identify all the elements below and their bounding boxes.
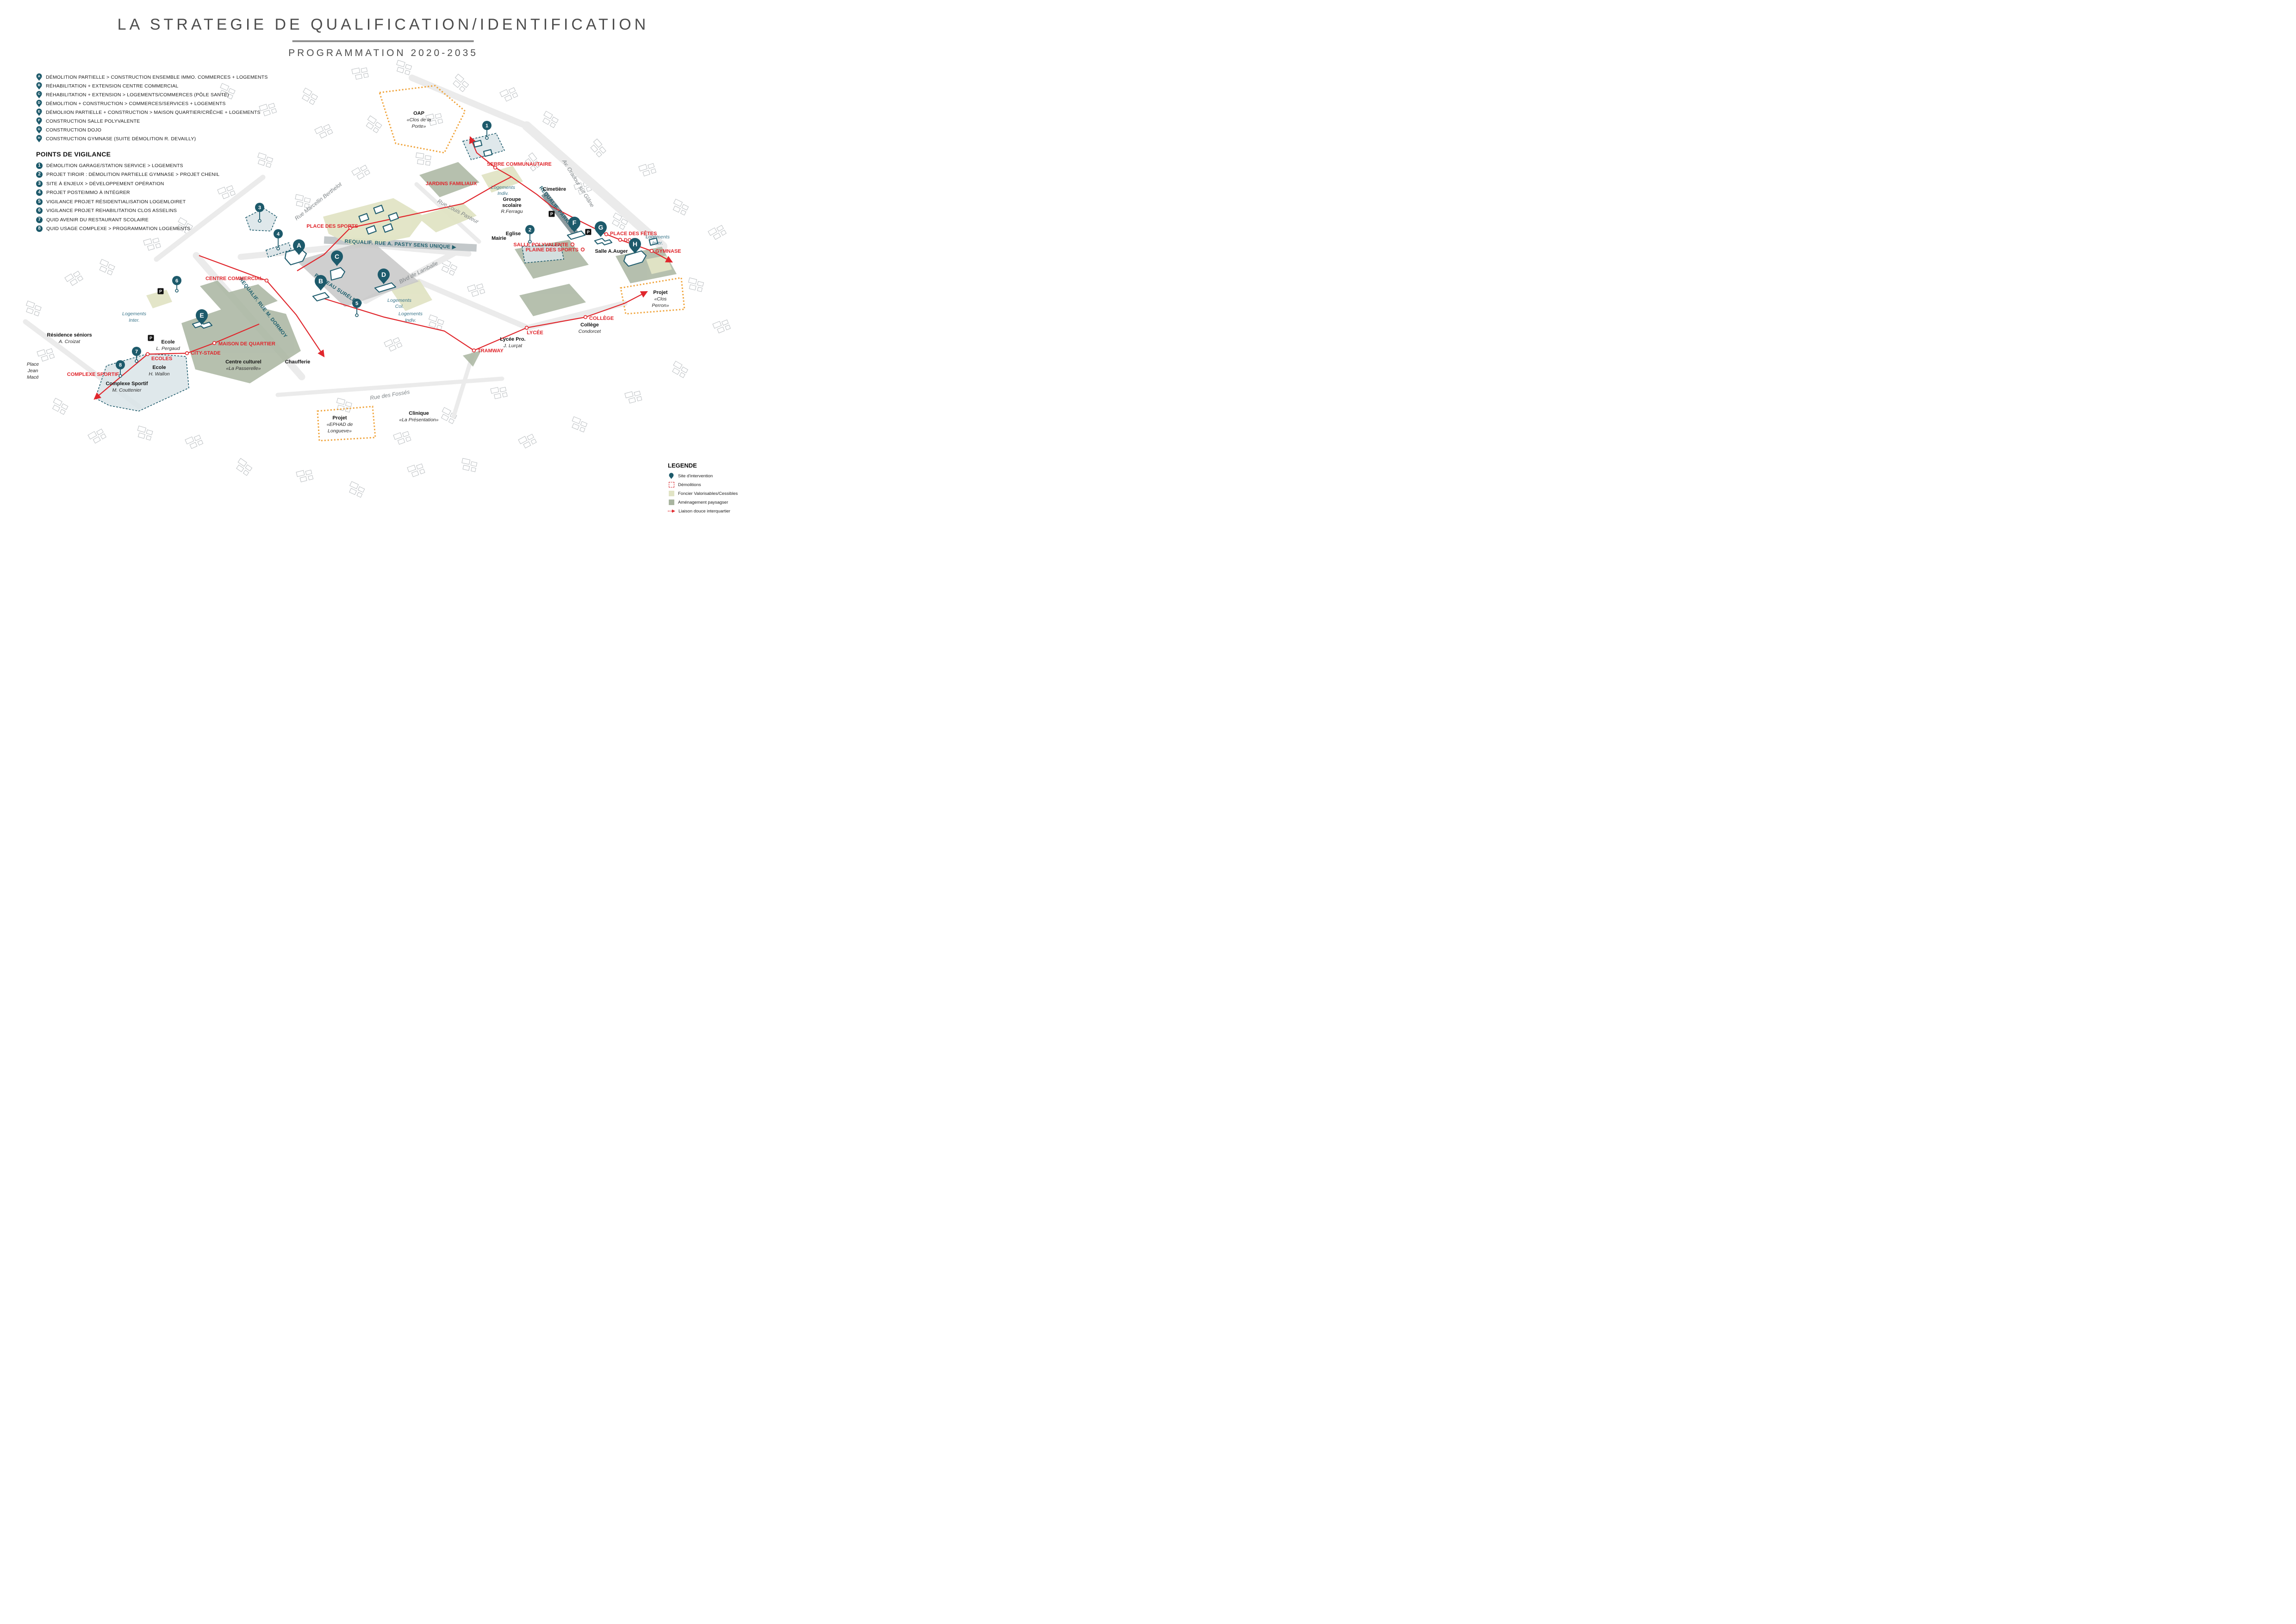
svg-text:7: 7 [135, 349, 138, 355]
label-complexe-sportif-1: Complexe Sportif [106, 381, 148, 387]
label-logements-indiv-s1: Logements [398, 311, 423, 317]
vigilance-item-8: 8QUID USAGE COMPLEXE > PROGRAMMATION LOG… [36, 226, 219, 232]
label-complexe-sportif-2: M. Couttenier [112, 387, 142, 393]
svg-text:E: E [38, 109, 40, 113]
pin-icon: B [36, 82, 42, 90]
label-eglise: Eglise [506, 231, 521, 237]
parking-icon: P [550, 212, 553, 217]
label-clinique-2: «La Présentation» [399, 417, 438, 423]
label-college-red: COLLÈGE [589, 315, 614, 321]
label-logements-col-1: Logements [387, 298, 412, 303]
pin-icon: D [36, 100, 42, 107]
svg-text:2: 2 [529, 227, 531, 233]
vigilance-num: 6 [36, 207, 43, 214]
label-residence-seniors-1: Résidence séniors [47, 332, 92, 338]
header: LA STRATEGIE DE QUALIFICATION/IDENTIFICA… [118, 16, 649, 59]
legend-item-site: Site d'intervention [668, 473, 760, 479]
vigilance-panel: POINTS DE VIGILANCE 1DÉMOLITION GARAGE/S… [36, 150, 219, 235]
program-item-H: H CONSTRUCTION GYMNASE (SUITE DÉMOLITION… [36, 136, 268, 142]
vigilance-item-3: 3SITE À ENJEUX > DÉVELOPPEMENT OPÉRATION [36, 181, 219, 187]
program-item-label: DÉMOLITION PARTIELLE > CONSTRUCTION ENSE… [46, 75, 268, 80]
vigilance-num: 4 [36, 189, 43, 196]
label-logements-indiv-s2: Indiv. [405, 318, 416, 323]
label-logements-col-2: Col. [395, 304, 404, 309]
vigilance-item-7: 7QUID AVENIR DU RESTAURANT SCOLAIRE [36, 217, 219, 223]
program-item-C: C RÉHABILITATION + EXTENSION > LOGEMENTS… [36, 92, 268, 98]
vigilance-label: PROJET POSTEIMMO À INTÉGRER [46, 190, 130, 195]
legend-label: Site d'intervention [678, 474, 713, 479]
svg-text:C: C [38, 92, 41, 96]
program-item-A: A DÉMOLITION PARTIELLE > CONSTRUCTION EN… [36, 74, 268, 80]
label-place-jean-mace-1: Place [27, 362, 39, 367]
vigilance-label: VIGILANCE PROJET RÉSIDENTIALISATION LOGE… [46, 199, 186, 205]
vigilance-num: 3 [36, 181, 43, 187]
vigilance-num: 8 [36, 225, 43, 232]
pin-icon: A [36, 73, 42, 81]
svg-text:G: G [598, 224, 604, 231]
label-lycee-pro-1: Lycée Pro. [500, 337, 525, 342]
label-cimetiere: Cimetière [543, 187, 566, 192]
label-oap-2: «Clos de la [407, 117, 431, 123]
foncier-swatch-icon [668, 491, 675, 496]
label-centre-commercial: CENTRE COMMERCIAL [205, 276, 263, 281]
label-ephad-2: «EPHAD de [327, 422, 353, 427]
program-item-label: RÉHABILITATION + EXTENSION > LOGEMENTS/C… [46, 92, 229, 98]
vigilance-label: VIGILANCE PROJET REHABILITATION CLOS ASS… [46, 208, 177, 213]
vigilance-item-6: 6VIGILANCE PROJET REHABILITATION CLOS AS… [36, 208, 219, 214]
label-logements-inter-w1: Logements [122, 311, 147, 317]
marker-6: 6 [172, 276, 181, 292]
vigilance-num: 7 [36, 217, 43, 223]
label-plaine-des-sports: PLAINE DES SPORTS [526, 247, 579, 253]
label-ephad-1: Projet [332, 415, 347, 421]
program-item-label: CONSTRUCTION SALLE POLYVALENTE [46, 119, 140, 124]
legend-item-liaison: Liaison douce interquartier [668, 508, 760, 514]
svg-text:C: C [335, 253, 339, 260]
paysager-swatch-icon [668, 500, 675, 505]
demolition-swatch-icon [668, 482, 675, 487]
svg-text:A: A [38, 74, 41, 78]
svg-text:1: 1 [485, 123, 488, 129]
vigilance-item-4: 4PROJET POSTEIMMO À INTÉGRER [36, 190, 219, 196]
road-label-fosses: Rue des Fossés [369, 388, 410, 401]
svg-text:B: B [318, 277, 323, 285]
legend-heading: LEGENDE [668, 462, 760, 469]
label-centre-culturel-1: Centre culturel [225, 359, 261, 365]
label-clos-perron-1: Projet [653, 290, 668, 295]
label-maison-de-quartier: MAISON DE QUARTIER [218, 341, 275, 347]
program-legend: A DÉMOLITION PARTIELLE > CONSTRUCTION EN… [36, 74, 268, 144]
label-clinique-1: Clinique [409, 411, 429, 416]
label-logements-inter-e1: Logements [646, 234, 670, 240]
label-logements-inter-e2: Inter. [652, 240, 663, 246]
svg-text:E: E [199, 312, 204, 319]
label-place-des-sports: PLACE DES SPORTS [306, 224, 358, 229]
vigilance-label: QUID USAGE COMPLEXE > PROGRAMMATION LOGE… [46, 226, 190, 231]
label-clos-perron-2: «Clos [654, 296, 667, 302]
pin-B: B [315, 275, 327, 291]
program-item-label: RÉHABILITATION + EXTENSION CENTRE COMMER… [46, 83, 178, 89]
urban-strategy-map-page: Rue Marcellin Berthelot Blvd de Lamballe… [0, 0, 765, 541]
map-legend: LEGENDE Site d'intervention Démolitions … [668, 462, 760, 517]
label-ecole-pergaud-1: Ecole [161, 339, 174, 345]
label-logements-indiv-n2: Indiv. [498, 191, 509, 196]
program-item-D: D DÉMOLITION + CONSTRUCTION > COMMERCES/… [36, 100, 268, 106]
vigilance-label: DÉMOLITION GARAGE/STATION SERVICE > LOGE… [46, 163, 183, 169]
label-mairie: Mairie [492, 236, 506, 241]
pin-icon: H [36, 135, 42, 143]
label-place-jean-mace-3: Macé [27, 375, 39, 380]
pin-icon: F [36, 117, 42, 125]
label-ephad-3: Longueve» [328, 428, 352, 434]
legend-label: Démolitions [678, 482, 701, 487]
pin-icon: C [36, 91, 42, 99]
label-salle-auger: Salle A.Auger [595, 249, 628, 254]
label-tramway: TRAMWAY [478, 348, 504, 354]
vigilance-item-5: 5VIGILANCE PROJET RÉSIDENTIALISATION LOG… [36, 199, 219, 205]
vigilance-label: SITE À ENJEUX > DÉVELOPPEMENT OPÉRATION [46, 181, 164, 187]
label-logements-inter-w2: Inter. [129, 318, 140, 323]
pin-icon: G [36, 126, 42, 134]
svg-text:B: B [38, 83, 41, 87]
legend-item-demolitions: Démolitions [668, 481, 760, 488]
label-serre-communautaire: SERRE COMMUNAUTAIRE [487, 162, 552, 167]
svg-text:8: 8 [119, 362, 122, 368]
vigilance-item-1: 1DÉMOLITION GARAGE/STATION SERVICE > LOG… [36, 162, 219, 169]
svg-text:F: F [572, 219, 577, 226]
label-groupe-scolaire-1: Groupe [503, 197, 521, 202]
parking-icon: P [159, 289, 162, 294]
svg-text:A: A [297, 242, 301, 249]
label-clos-perron-3: Perron» [652, 303, 669, 308]
liaison-arrow-icon [668, 509, 675, 513]
legend-label: Liaison douce interquartier [678, 509, 730, 514]
vigilance-item-2: 2PROJET TIROIR : DÉMOLITION PARTIELLE GY… [36, 172, 219, 178]
vigilance-label: PROJET TIROIR : DÉMOLITION PARTIELLE GYM… [46, 172, 219, 177]
svg-text:H: H [633, 240, 637, 248]
parking-icon: P [587, 230, 590, 235]
label-lycee-pro-2: J. Lurçat [503, 343, 523, 349]
vigilance-num: 1 [36, 162, 43, 169]
label-college-2: Condorcet [579, 329, 602, 334]
label-gymnase: GYMNASE [655, 249, 681, 254]
svg-text:D: D [38, 100, 41, 105]
vigilance-label: QUID AVENIR DU RESTAURANT SCOLAIRE [46, 217, 149, 223]
label-lycee: LYCÉE [527, 330, 543, 336]
legend-item-foncier: Foncier Valorisables/Cessibles [668, 490, 760, 497]
svg-text:3: 3 [258, 205, 261, 211]
svg-text:G: G [38, 127, 41, 131]
pin-icon: E [36, 108, 42, 116]
svg-text:5: 5 [355, 301, 358, 306]
program-item-E: E DÉMOLIION PARTIELLE + CONSTRUCTION > M… [36, 109, 268, 115]
site-pin-icon [668, 473, 675, 479]
label-ecole-wallon-1: Ecole [152, 365, 166, 370]
svg-text:D: D [381, 271, 386, 278]
label-oap-1: OAP [413, 111, 424, 116]
marker-2: 2 [525, 225, 535, 243]
label-residence-seniors-2: A. Croizat [58, 339, 81, 344]
label-college-1: Collège [580, 322, 599, 328]
label-oap-3: Porte» [412, 124, 426, 129]
label-groupe-scolaire-3: R.Ferragu [501, 209, 523, 214]
vigilance-heading: POINTS DE VIGILANCE [36, 150, 219, 158]
svg-text:F: F [38, 118, 40, 122]
label-city-stade: CITY-STADE [191, 350, 221, 356]
program-item-F: F CONSTRUCTION SALLE POLYVALENTE [36, 118, 268, 124]
label-logements-indiv-n1: Logements [491, 185, 516, 190]
title-rule [292, 40, 474, 42]
legend-label: Foncier Valorisables/Cessibles [678, 491, 738, 496]
vigilance-num: 5 [36, 199, 43, 205]
vigilance-num: 2 [36, 171, 43, 178]
parking-icon: P [149, 336, 152, 341]
label-place-jean-mace-2: Jean [27, 368, 38, 374]
page-subtitle: PROGRAMMATION 2020-2035 [118, 48, 649, 59]
program-item-label: DÉMOLIION PARTIELLE + CONSTRUCTION > MAI… [46, 110, 261, 115]
svg-text:4: 4 [277, 231, 280, 237]
program-item-B: B RÉHABILITATION + EXTENSION CENTRE COMM… [36, 83, 268, 89]
page-title: LA STRATEGIE DE QUALIFICATION/IDENTIFICA… [118, 16, 649, 34]
svg-text:H: H [38, 136, 40, 140]
program-item-G: G CONSTRUCTION DOJO [36, 127, 268, 133]
legend-item-paysager: Aménagement paysagser [668, 499, 760, 506]
program-item-label: CONSTRUCTION DOJO [46, 127, 101, 133]
program-item-label: DÉMOLITION + CONSTRUCTION > COMMERCES/SE… [46, 101, 226, 106]
legend-label: Aménagement paysagser [678, 500, 728, 505]
label-centre-culturel-2: «La Passerelle» [226, 366, 261, 371]
label-chaufferie: Chaufferie [285, 359, 310, 365]
svg-text:6: 6 [175, 278, 178, 284]
program-item-label: CONSTRUCTION GYMNASE (SUITE DÉMOLITION R… [46, 136, 196, 142]
label-ecoles: ECOLES [151, 356, 172, 362]
label-groupe-scolaire-2: scolaire [502, 203, 522, 208]
label-ecole-pergaud-2: L. Pergaud [156, 346, 180, 351]
label-ecole-wallon-2: H. Wallon [149, 371, 169, 377]
label-complexe-sportif-red: COMPLEXE SPORTIF [67, 372, 119, 377]
label-jardins-familiaux: JARDINS FAMILIAUX [426, 181, 477, 187]
